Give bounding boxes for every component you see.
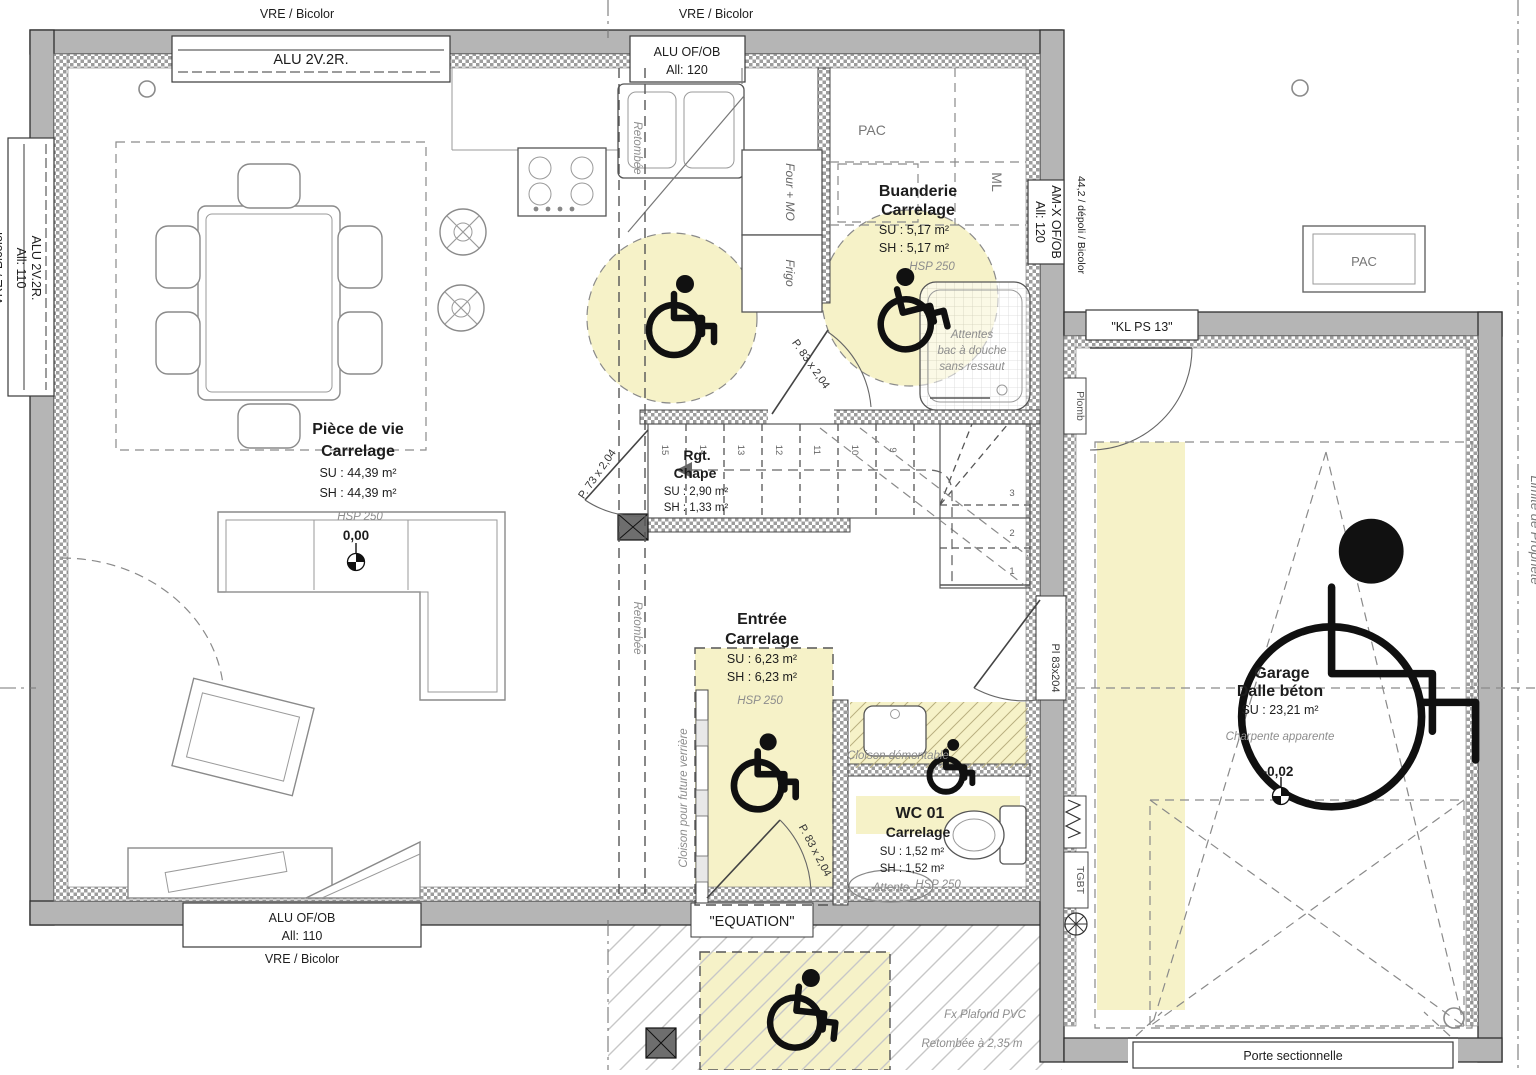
room-finish: Carrelage bbox=[886, 824, 951, 840]
level-value: -0,02 bbox=[1263, 764, 1294, 779]
door-rgt: P. 73 x 2,04 bbox=[576, 430, 648, 516]
room-name: Entrée bbox=[737, 611, 787, 628]
stair-number: 13 bbox=[735, 445, 746, 456]
floor-plan-page: ALU 2V.2R. VRE / Bicolor ALU OF/OB All: … bbox=[0, 0, 1536, 1070]
window-top-mid-label: ALU OF/OB bbox=[654, 45, 721, 59]
chair bbox=[238, 164, 300, 208]
attente-label: Attente bbox=[872, 882, 909, 894]
chair bbox=[156, 226, 200, 288]
room-finish: Dalle béton bbox=[1237, 683, 1323, 700]
window-bottom-sill: All: 110 bbox=[282, 929, 323, 943]
window-right-label: AM-X OF/OB bbox=[1049, 185, 1063, 259]
room-note: Charpente apparente bbox=[1226, 731, 1335, 743]
door-sectionnelle-label: Porte sectionnelle bbox=[1243, 1049, 1342, 1063]
door-equation: "EQUATION" bbox=[691, 903, 813, 937]
post-stairs bbox=[618, 514, 648, 540]
garage-access-strip bbox=[1097, 442, 1185, 1010]
room-hsp: HSP 250 bbox=[909, 261, 955, 273]
insulation-west bbox=[54, 54, 68, 901]
window-left-label: ALU 2V.2R. bbox=[29, 236, 43, 301]
room-name: WC 01 bbox=[896, 805, 945, 822]
verriere-segment bbox=[696, 790, 708, 816]
downpipe-top-left bbox=[139, 81, 155, 97]
plomb-box: Plomb bbox=[1064, 378, 1086, 434]
stair-number: 15 bbox=[659, 445, 670, 456]
four-mo-label: Four + MO bbox=[783, 163, 797, 221]
ml-label: ML bbox=[989, 172, 1005, 192]
window-top-left-label: ALU 2V.2R. bbox=[273, 52, 348, 68]
level-value: 0,00 bbox=[343, 528, 369, 543]
door-equation-label: "EQUATION" bbox=[710, 914, 795, 930]
stair-number: 9 bbox=[887, 447, 898, 452]
stair-number: 10 bbox=[849, 445, 860, 456]
property-line-label: Limite de Propriété bbox=[1528, 475, 1536, 584]
room-finish: Carrelage bbox=[725, 631, 799, 648]
window-top-left-note: VRE / Bicolor bbox=[260, 7, 334, 21]
room-label-rgt: Rgt. Chape SU : 2,90 m² SH : 1,33 m² bbox=[664, 447, 729, 514]
stair-number: 11 bbox=[811, 445, 822, 455]
door-kl: "KL PS 13" bbox=[1086, 310, 1198, 450]
window-top-mid: ALU OF/OB All: 120 VRE / Bicolor bbox=[630, 7, 753, 82]
room-name: Garage bbox=[1254, 665, 1309, 682]
wall-stairs-north bbox=[640, 410, 1040, 424]
door-laundry-label: P. 83 x 2,04 bbox=[789, 337, 832, 391]
wc-washbasin bbox=[864, 706, 926, 756]
cloison-verriere-label: Cloison pour future verrière bbox=[678, 728, 690, 867]
stair-number: 2 bbox=[1009, 528, 1014, 539]
chair bbox=[156, 312, 200, 374]
room-su: SU : 5,17 m² bbox=[879, 223, 949, 237]
garage-slab-cross bbox=[1150, 800, 1464, 1026]
room-sh: SH : 1,33 m² bbox=[664, 502, 729, 514]
laundry-door-opening bbox=[768, 408, 834, 426]
fx-plafond-label: Fx Plafond PVC bbox=[944, 1009, 1027, 1021]
kitchen-tall-units: Four + MO Frigo bbox=[742, 150, 822, 312]
room-name: Rgt. bbox=[683, 447, 710, 463]
room-su: SU : 6,23 m² bbox=[727, 652, 797, 666]
room-sh: SH : 5,17 m² bbox=[879, 241, 949, 255]
room-su: SU : 23,21 m² bbox=[1241, 703, 1318, 717]
door-garage-pl: Pl 83x204 bbox=[974, 596, 1066, 701]
room-note: Attentes bbox=[950, 329, 993, 341]
room-su: SU : 2,90 m² bbox=[664, 486, 729, 498]
chair bbox=[338, 226, 382, 288]
window-bottom: ALU OF/OB All: 110 VRE / Bicolor bbox=[183, 903, 421, 966]
chair bbox=[238, 404, 300, 448]
armchair bbox=[172, 678, 314, 795]
level-marker bbox=[1273, 777, 1290, 805]
room-finish: Chape bbox=[674, 465, 717, 481]
window-left-sill: All: 110 bbox=[14, 248, 28, 289]
room-note: sans ressaut bbox=[939, 361, 1005, 373]
window-right: AM-X OF/OB All: 120 44,2 / dépoli / Bico… bbox=[1028, 176, 1087, 275]
kitchen-stool bbox=[438, 285, 484, 331]
room-hsp: HSP 250 bbox=[737, 695, 783, 707]
swing-arc bbox=[62, 558, 224, 700]
room-label-garage: Garage Dalle béton SU : 23,21 m² Charpen… bbox=[1226, 665, 1335, 805]
pac-exterior-unit: PAC bbox=[1303, 226, 1425, 292]
room-hsp: HSP 250 bbox=[337, 511, 383, 523]
door-rgt-label: P. 73 x 2,04 bbox=[576, 447, 619, 501]
kitchen-hob bbox=[518, 148, 606, 216]
retombee-plafond-label: Retombée à 2,35 m bbox=[921, 1038, 1022, 1050]
pac-room-label: PAC bbox=[858, 122, 886, 138]
wall-entry-wc bbox=[833, 700, 848, 905]
door-sectionnelle: Porte sectionnelle bbox=[1128, 1012, 1458, 1068]
floor-plan-drawing: ALU 2V.2R. VRE / Bicolor ALU OF/OB All: … bbox=[0, 0, 1536, 1070]
window-bottom-label: ALU OF/OB bbox=[269, 911, 336, 925]
garage-wall-east bbox=[1478, 312, 1502, 1062]
frigo-label: Frigo bbox=[783, 259, 797, 287]
stair-numbers-down: 3 2 1 bbox=[1009, 488, 1014, 577]
stair-number: 12 bbox=[773, 445, 784, 456]
post-porch bbox=[646, 1028, 676, 1058]
tv-bench bbox=[128, 848, 332, 898]
plomb-label: Plomb bbox=[1074, 391, 1086, 421]
window-right-note: 44,2 / dépoli / Bicolor bbox=[1075, 176, 1087, 275]
room-note: bac à douche bbox=[937, 345, 1006, 357]
window-left-note: VRE / Bicolor bbox=[0, 231, 5, 305]
stair-number: 3 bbox=[1009, 488, 1014, 499]
room-name: Pièce de vie bbox=[312, 421, 404, 438]
door-pl-label: Pl 83x204 bbox=[1049, 644, 1061, 693]
room-name: Buanderie bbox=[879, 183, 957, 200]
living-area bbox=[62, 512, 505, 898]
pac-ext-label: PAC bbox=[1351, 254, 1377, 269]
room-finish: Carrelage bbox=[321, 443, 395, 460]
room-finish: Carrelage bbox=[881, 202, 955, 219]
room-sh: SH : 1,52 m² bbox=[880, 863, 945, 875]
downpipe-top-right bbox=[1292, 80, 1308, 96]
dining-set bbox=[116, 142, 426, 450]
window-top-mid-sill: All: 120 bbox=[666, 63, 708, 77]
room-su: SU : 1,52 m² bbox=[880, 846, 945, 858]
kitchen-stool bbox=[440, 209, 486, 255]
room-hsp: HSP 250 bbox=[915, 879, 961, 891]
verriere-segment bbox=[696, 720, 708, 746]
window-top-mid-note: VRE / Bicolor bbox=[679, 7, 753, 21]
door-kl-label: "KL PS 13" bbox=[1111, 320, 1172, 334]
cloison-demontable-label: Cloison démontable bbox=[847, 750, 949, 762]
chair bbox=[338, 312, 382, 374]
window-top-left: ALU 2V.2R. VRE / Bicolor bbox=[172, 7, 450, 82]
retombee-label-2: Retombée bbox=[631, 601, 643, 654]
room-sh: SH : 6,23 m² bbox=[727, 670, 797, 684]
retombee-label-1: Retombée bbox=[631, 121, 643, 174]
garage-slab-outline bbox=[1150, 800, 1464, 1026]
wall-stairs-south bbox=[648, 518, 850, 532]
verriere-segment bbox=[696, 856, 708, 882]
window-left: ALU 2V.2R. All: 110 VRE / Bicolor bbox=[0, 138, 54, 396]
stair-number: 1 bbox=[1009, 566, 1014, 577]
room-su: SU : 44,39 m² bbox=[319, 466, 396, 480]
window-right-sill: All: 120 bbox=[1033, 201, 1047, 243]
vent-symbol-lines bbox=[1065, 913, 1087, 935]
room-sh: SH : 44,39 m² bbox=[319, 486, 396, 500]
tgbt-label: TGBT bbox=[1074, 866, 1086, 895]
window-bottom-note: VRE / Bicolor bbox=[265, 952, 339, 966]
